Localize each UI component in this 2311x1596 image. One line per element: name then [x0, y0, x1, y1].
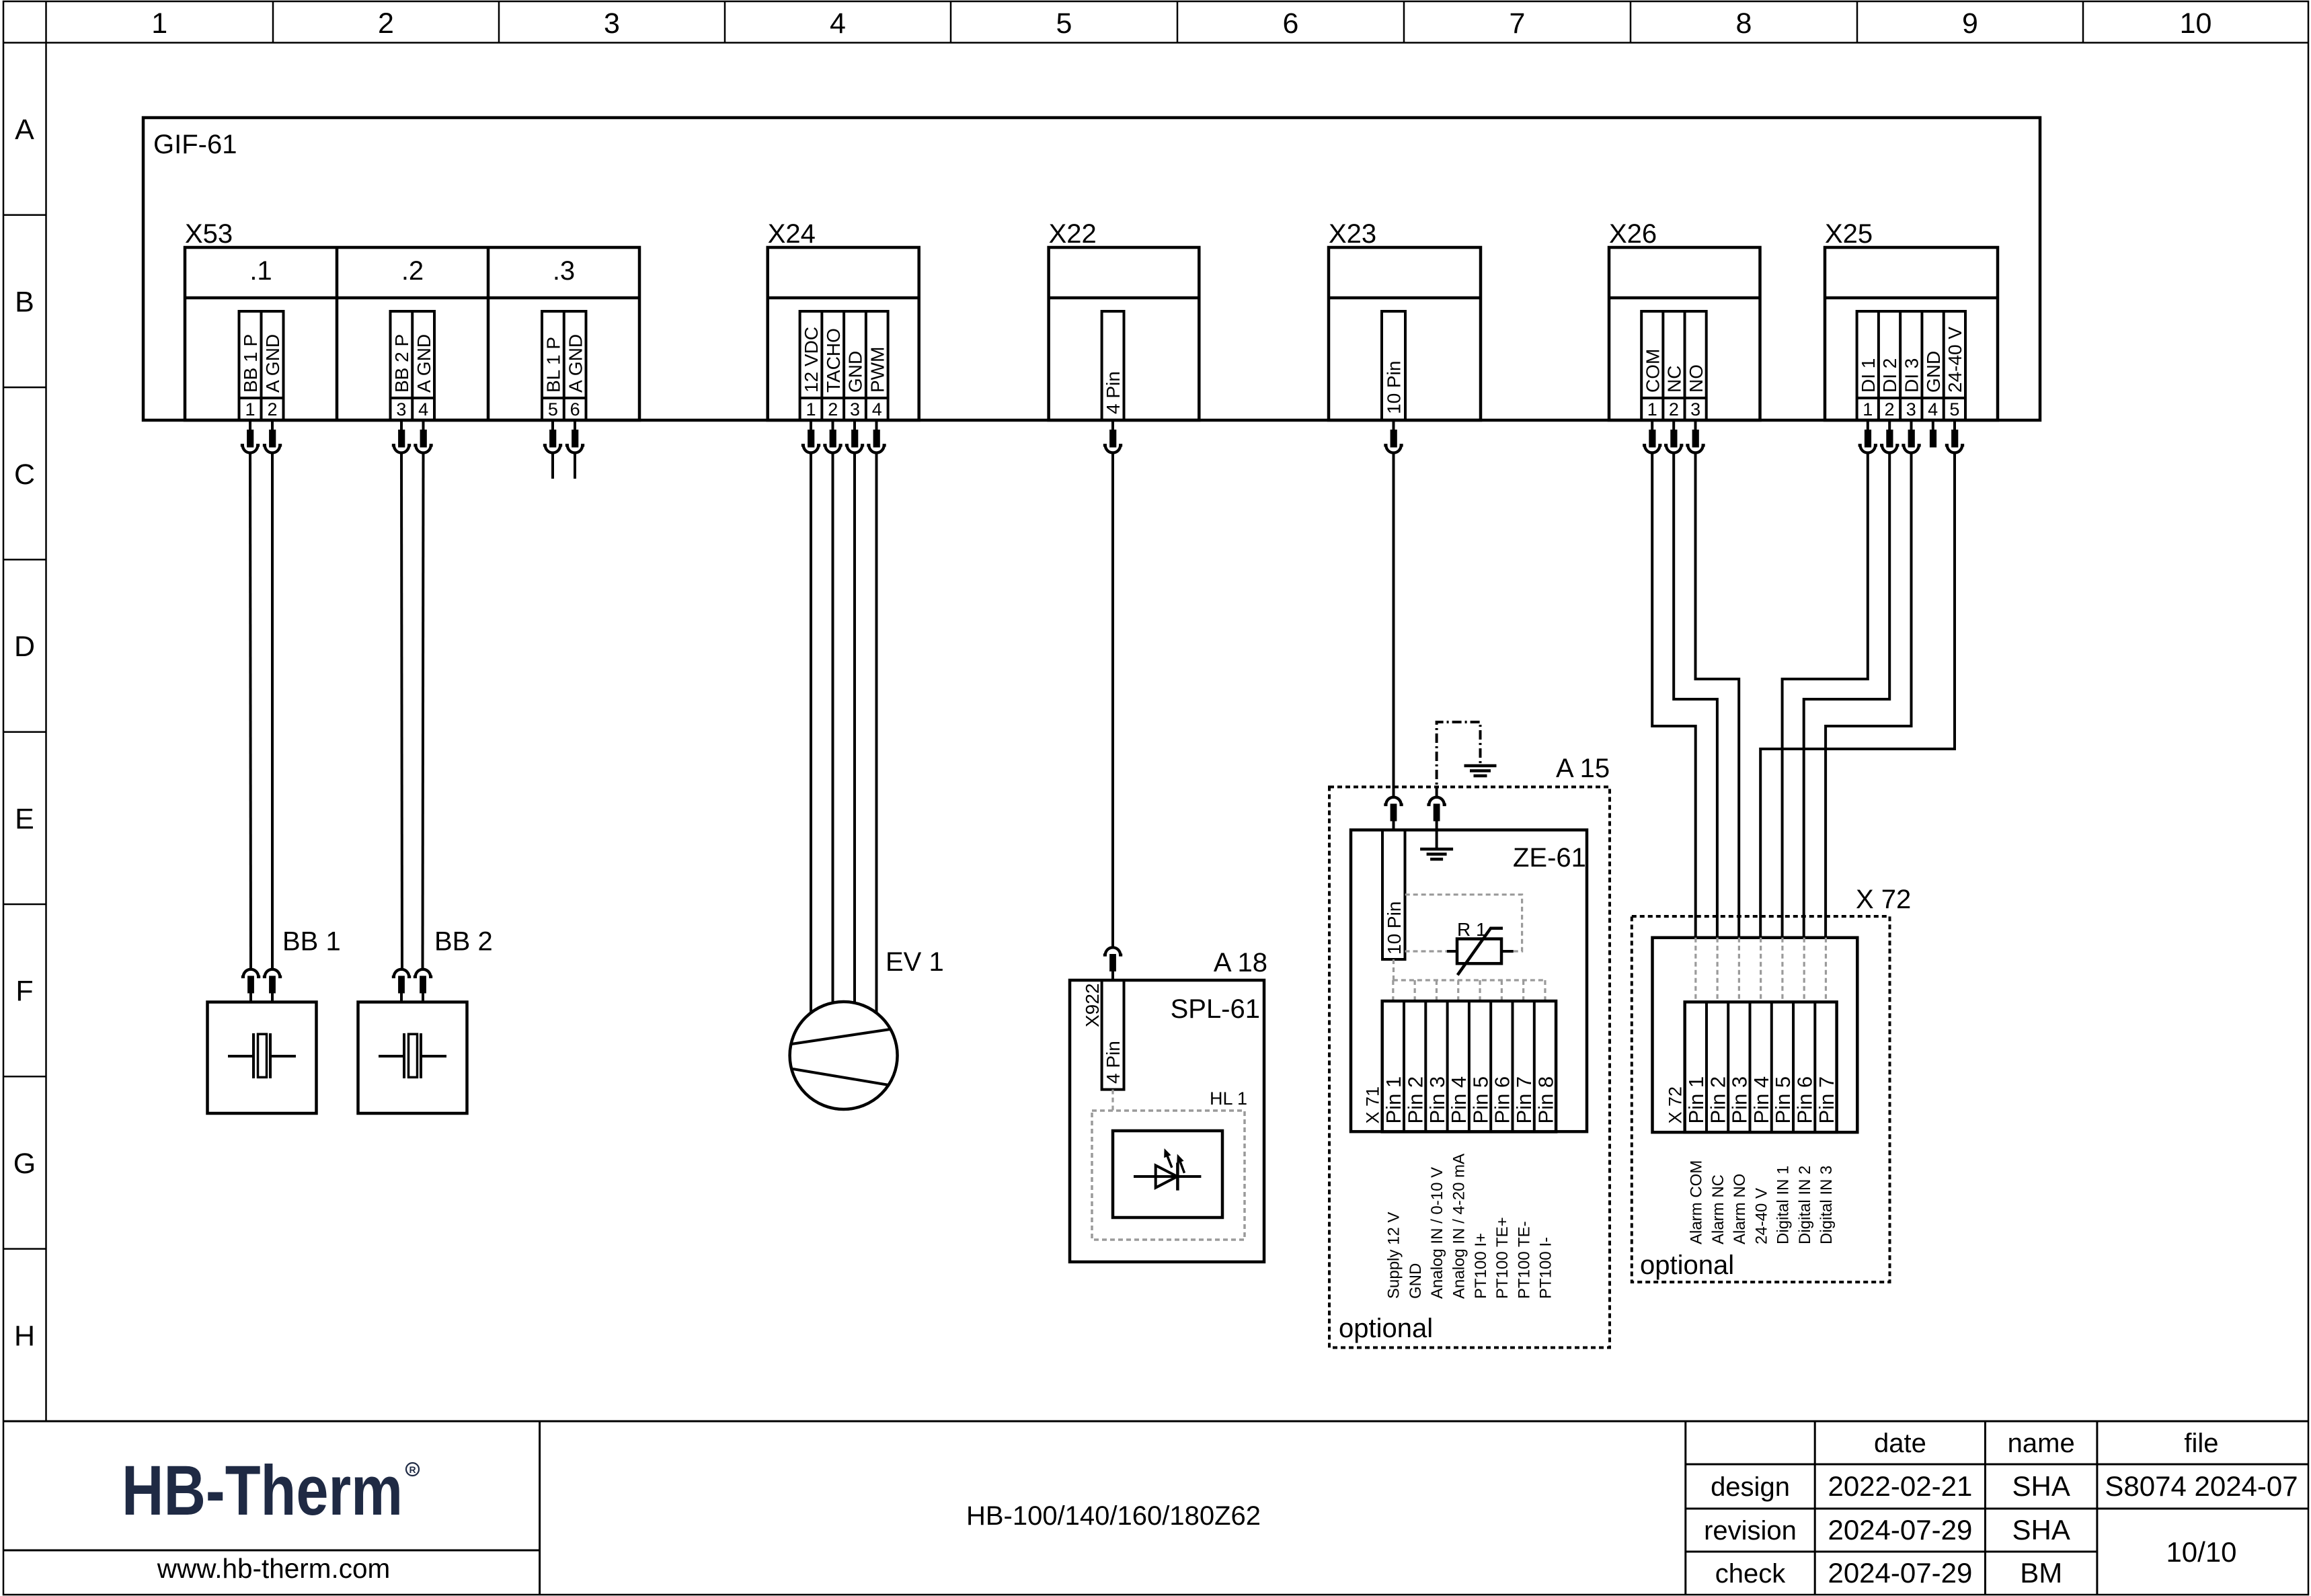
svg-text:Alarm NC: Alarm NC	[1709, 1174, 1727, 1244]
svg-text:F: F	[15, 975, 33, 1008]
svg-text:.1: .1	[249, 256, 272, 286]
svg-text:Pin 5: Pin 5	[1771, 1076, 1795, 1124]
svg-text:DI 1: DI 1	[1858, 358, 1879, 393]
svg-text:A GND: A GND	[414, 334, 434, 393]
svg-text:X53: X53	[185, 219, 233, 249]
svg-text:HB-100/140/160/180Z62: HB-100/140/160/180Z62	[966, 1501, 1261, 1531]
svg-text:2024-07-29: 2024-07-29	[1828, 1557, 1972, 1589]
svg-text:GND: GND	[1923, 351, 1944, 393]
svg-text:date: date	[1874, 1429, 1926, 1458]
svg-text:5: 5	[1056, 7, 1072, 40]
svg-text:Pin 4: Pin 4	[1750, 1076, 1773, 1124]
svg-text:SHA: SHA	[2012, 1514, 2070, 1546]
svg-text:8: 8	[1736, 7, 1752, 40]
svg-text:name: name	[2008, 1429, 2075, 1458]
svg-text:Digital IN 1: Digital IN 1	[1774, 1166, 1793, 1244]
svg-text:Alarm NO: Alarm NO	[1731, 1174, 1749, 1244]
svg-text:D: D	[14, 631, 35, 663]
svg-text:S8074 2024-07: S8074 2024-07	[2105, 1470, 2298, 1502]
svg-text:A 15: A 15	[1556, 754, 1610, 783]
svg-text:PT100 I+: PT100 I+	[1472, 1233, 1490, 1299]
svg-text:4: 4	[830, 7, 846, 40]
svg-text:HB-Therm: HB-Therm	[122, 1451, 403, 1530]
svg-text:.3: .3	[553, 256, 575, 286]
svg-text:GIF-61: GIF-61	[153, 130, 237, 159]
svg-text:DI 3: DI 3	[1902, 358, 1922, 393]
svg-text:BB 1: BB 1	[282, 927, 341, 957]
svg-text:1: 1	[1647, 399, 1657, 420]
svg-text:www.hb-therm.com: www.hb-therm.com	[157, 1553, 391, 1584]
svg-text:1: 1	[806, 399, 816, 420]
svg-text:1: 1	[245, 399, 255, 420]
svg-text:4: 4	[1928, 399, 1938, 420]
svg-text:A GND: A GND	[262, 334, 283, 393]
svg-text:Pin 2: Pin 2	[1706, 1076, 1729, 1124]
svg-text:G: G	[13, 1148, 36, 1180]
svg-text:2024-07-29: 2024-07-29	[1828, 1514, 1972, 1546]
svg-text:Pin 3: Pin 3	[1425, 1076, 1449, 1124]
svg-text:3: 3	[396, 399, 406, 420]
svg-text:6: 6	[570, 399, 580, 420]
svg-text:BL 1 P: BL 1 P	[543, 337, 564, 393]
svg-text:NC: NC	[1664, 366, 1685, 393]
svg-text:optional: optional	[1640, 1250, 1734, 1280]
svg-text:Pin 1: Pin 1	[1684, 1076, 1708, 1124]
svg-text:Supply 12 V: Supply 12 V	[1385, 1212, 1403, 1299]
svg-text:SHA: SHA	[2012, 1470, 2070, 1502]
svg-text:Pin 3: Pin 3	[1728, 1076, 1752, 1124]
svg-text:X 71: X 71	[1363, 1086, 1383, 1124]
svg-text:C: C	[14, 458, 35, 491]
svg-text:X 72: X 72	[1665, 1086, 1685, 1124]
svg-text:Digital IN 2: Digital IN 2	[1796, 1166, 1814, 1244]
svg-text:A: A	[15, 114, 34, 146]
svg-text:4 Pin: 4 Pin	[1103, 1041, 1124, 1084]
svg-text:2022-02-21: 2022-02-21	[1828, 1470, 1972, 1502]
svg-text:12 VDC: 12 VDC	[801, 327, 822, 393]
svg-text:4: 4	[418, 399, 428, 420]
svg-text:B: B	[15, 286, 34, 318]
svg-text:check: check	[1715, 1559, 1786, 1589]
svg-text:PWM: PWM	[867, 347, 888, 393]
svg-text:Analog IN / 0-10 V: Analog IN / 0-10 V	[1428, 1167, 1446, 1299]
svg-text:BB 2 P: BB 2 P	[391, 334, 412, 393]
svg-text:.2: .2	[401, 256, 424, 286]
svg-text:BM: BM	[2020, 1557, 2062, 1589]
svg-text:GND: GND	[1407, 1263, 1425, 1299]
svg-text:6: 6	[1283, 7, 1299, 40]
svg-text:BB 1 P: BB 1 P	[240, 334, 261, 393]
svg-text:Alarm COM: Alarm COM	[1688, 1160, 1706, 1244]
svg-text:3: 3	[850, 399, 860, 420]
svg-text:X26: X26	[1609, 219, 1657, 249]
svg-text:2: 2	[1669, 399, 1679, 420]
svg-text:revision: revision	[1704, 1516, 1797, 1546]
svg-text:10/10: 10/10	[2166, 1536, 2236, 1568]
svg-text:R 1: R 1	[1457, 919, 1487, 940]
svg-text:A GND: A GND	[565, 334, 586, 393]
svg-text:1: 1	[151, 7, 167, 40]
svg-text:10: 10	[2180, 7, 2212, 40]
svg-text:EV 1: EV 1	[886, 947, 944, 977]
svg-text:2: 2	[378, 7, 394, 40]
svg-text:Digital IN 3: Digital IN 3	[1817, 1166, 1836, 1244]
svg-text:9: 9	[1962, 7, 1978, 40]
svg-text:DI 2: DI 2	[1879, 358, 1900, 393]
svg-text:X24: X24	[768, 219, 816, 249]
svg-text:NO: NO	[1686, 364, 1707, 393]
svg-text:Pin 6: Pin 6	[1793, 1076, 1817, 1124]
svg-text:Pin 5: Pin 5	[1468, 1076, 1492, 1124]
svg-text:1: 1	[1863, 399, 1873, 420]
svg-text:3: 3	[604, 7, 620, 40]
svg-text:10 Pin: 10 Pin	[1384, 902, 1405, 955]
svg-text:Analog IN / 4-20 mA: Analog IN / 4-20 mA	[1450, 1154, 1468, 1299]
svg-text:H: H	[14, 1320, 35, 1352]
svg-text:Pin 6: Pin 6	[1491, 1076, 1514, 1124]
svg-text:PT100 TE-: PT100 TE-	[1515, 1221, 1533, 1299]
svg-text:10 Pin: 10 Pin	[1384, 361, 1405, 414]
svg-text:PT100 TE+: PT100 TE+	[1493, 1217, 1512, 1299]
svg-text:5: 5	[548, 399, 558, 420]
svg-text:24-40 V: 24-40 V	[1752, 1188, 1770, 1244]
svg-text:X22: X22	[1049, 219, 1097, 249]
svg-text:GND: GND	[845, 351, 866, 393]
svg-text:PT100 I-: PT100 I-	[1537, 1237, 1555, 1299]
svg-text:7: 7	[1510, 7, 1526, 40]
svg-text:BB 2: BB 2	[434, 927, 493, 957]
svg-text:X922: X922	[1082, 984, 1103, 1027]
svg-text:ZE-61: ZE-61	[1513, 843, 1586, 873]
svg-text:design: design	[1711, 1472, 1790, 1502]
svg-text:E: E	[15, 803, 34, 835]
svg-text:3: 3	[1690, 399, 1700, 420]
svg-text:A 18: A 18	[1214, 948, 1267, 977]
svg-text:Pin 2: Pin 2	[1404, 1076, 1427, 1124]
svg-text:Pin 7: Pin 7	[1512, 1076, 1536, 1124]
svg-text:SPL-61: SPL-61	[1171, 994, 1260, 1024]
svg-text:HL 1: HL 1	[1210, 1088, 1247, 1109]
svg-text:Pin 4: Pin 4	[1447, 1076, 1471, 1124]
svg-text:Pin 8: Pin 8	[1534, 1076, 1557, 1124]
svg-text:Pin 1: Pin 1	[1382, 1076, 1405, 1124]
svg-text:R: R	[409, 1464, 416, 1475]
svg-text:TACHO: TACHO	[823, 328, 844, 393]
svg-text:file: file	[2184, 1429, 2218, 1458]
svg-text:X25: X25	[1825, 219, 1873, 249]
svg-text:24-40 V: 24-40 V	[1945, 327, 1965, 393]
svg-text:5: 5	[1949, 399, 1959, 420]
svg-text:X 72: X 72	[1856, 885, 1911, 914]
svg-text:4 Pin: 4 Pin	[1103, 371, 1124, 414]
svg-text:X23: X23	[1329, 219, 1376, 249]
svg-text:2: 2	[1885, 399, 1895, 420]
svg-text:3: 3	[1906, 399, 1916, 420]
svg-text:optional: optional	[1339, 1314, 1433, 1343]
svg-text:4: 4	[872, 399, 882, 420]
svg-text:COM: COM	[1643, 349, 1663, 393]
svg-text:2: 2	[828, 399, 838, 420]
svg-text:Pin 7: Pin 7	[1815, 1076, 1838, 1124]
svg-text:2: 2	[267, 399, 277, 420]
